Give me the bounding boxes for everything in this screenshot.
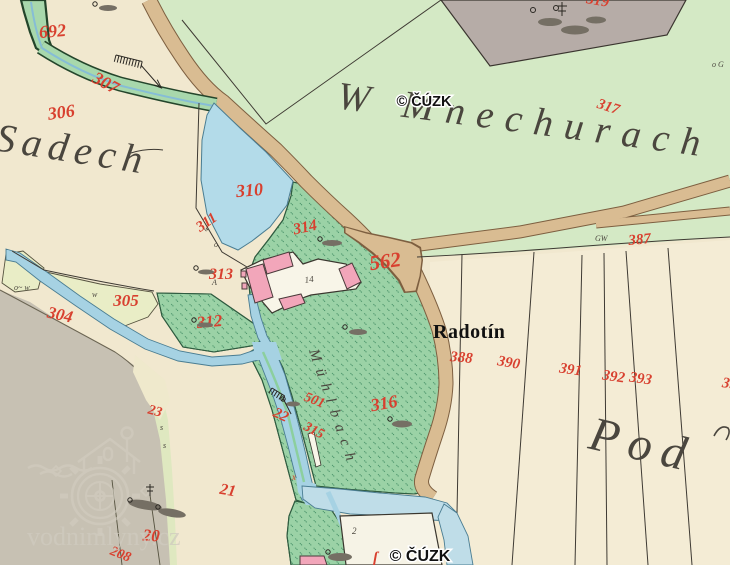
svg-text:vodnimlyny.cz: vodnimlyny.cz xyxy=(27,522,181,551)
svg-text:393: 393 xyxy=(627,369,653,388)
svg-text:2: 2 xyxy=(352,526,357,536)
svg-text:388: 388 xyxy=(448,349,473,367)
svg-text:s: s xyxy=(160,423,163,432)
svg-text:w: w xyxy=(92,290,98,299)
svg-text:o G: o G xyxy=(712,60,724,69)
svg-text:306: 306 xyxy=(45,100,76,124)
svg-text:GW: GW xyxy=(595,234,609,243)
svg-text:Radotín: Radotín xyxy=(433,321,505,343)
svg-text:310: 310 xyxy=(234,179,264,201)
svg-text:391: 391 xyxy=(557,360,582,379)
svg-text:x: x xyxy=(291,472,296,482)
svg-text:o~ w: o~ w xyxy=(14,283,30,292)
svg-text:21: 21 xyxy=(217,481,237,501)
svg-text:A: A xyxy=(211,278,217,287)
svg-text:© ČÚZK: © ČÚZK xyxy=(397,92,453,110)
svg-text:692: 692 xyxy=(38,20,67,42)
svg-text:387: 387 xyxy=(627,231,652,249)
svg-text:© ČÚZK: © ČÚZK xyxy=(390,546,451,565)
svg-text:392: 392 xyxy=(600,367,626,386)
svg-text:562: 562 xyxy=(368,247,403,275)
svg-text:305: 305 xyxy=(112,291,139,310)
svg-text:o: o xyxy=(214,240,218,249)
svg-text:s: s xyxy=(163,441,166,450)
svg-text:312: 312 xyxy=(195,311,224,332)
